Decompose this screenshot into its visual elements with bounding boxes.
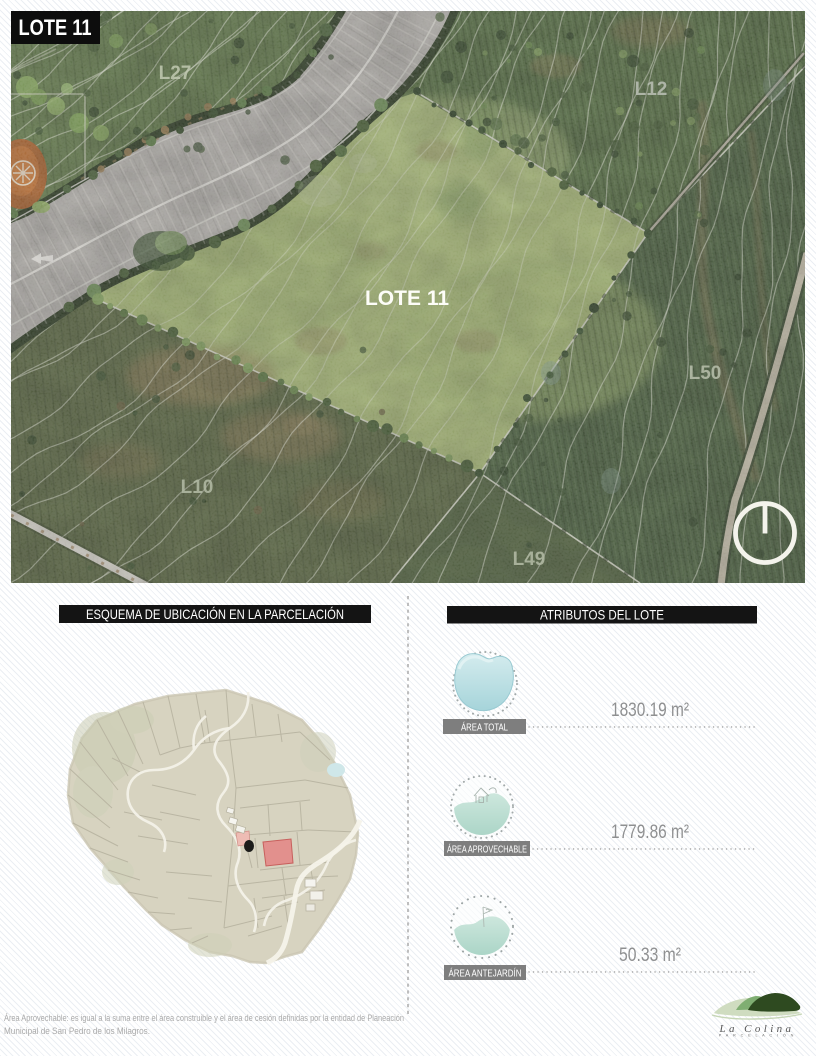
- svg-text:ESQUEMA DE UBICACIÓN EN LA PAR: ESQUEMA DE UBICACIÓN EN LA PARCELACIÓN: [86, 606, 344, 622]
- svg-text:LOTE 11: LOTE 11: [365, 287, 449, 310]
- svg-text:L12: L12: [635, 79, 668, 100]
- svg-text:ÁREA ANTEJARDÍN: ÁREA ANTEJARDÍN: [449, 967, 522, 980]
- svg-text:ÁREA APROVECHABLE: ÁREA APROVECHABLE: [447, 843, 527, 856]
- svg-text:L50: L50: [689, 363, 722, 384]
- svg-text:Municipal de San Pedro de los: Municipal de San Pedro de los Milagros.: [4, 1026, 150, 1036]
- svg-text:1830.19 m²: 1830.19 m²: [611, 699, 689, 721]
- svg-text:LOTE 11: LOTE 11: [19, 15, 92, 40]
- svg-text:L27: L27: [159, 63, 192, 84]
- svg-text:50.33 m²: 50.33 m²: [619, 944, 681, 966]
- svg-text:P A R C E L A C I Ó N: P A R C E L A C I Ó N: [719, 1033, 796, 1038]
- svg-text:ÁREA TOTAL: ÁREA TOTAL: [461, 721, 508, 734]
- svg-text:L49: L49: [513, 549, 546, 570]
- svg-text:Área Aprovechable: es igual a: Área Aprovechable: es igual a la suma en…: [4, 1013, 404, 1023]
- svg-text:ATRIBUTOS DEL LOTE: ATRIBUTOS DEL LOTE: [540, 607, 664, 623]
- svg-text:1779.86 m²: 1779.86 m²: [611, 821, 689, 843]
- svg-text:L10: L10: [181, 477, 214, 498]
